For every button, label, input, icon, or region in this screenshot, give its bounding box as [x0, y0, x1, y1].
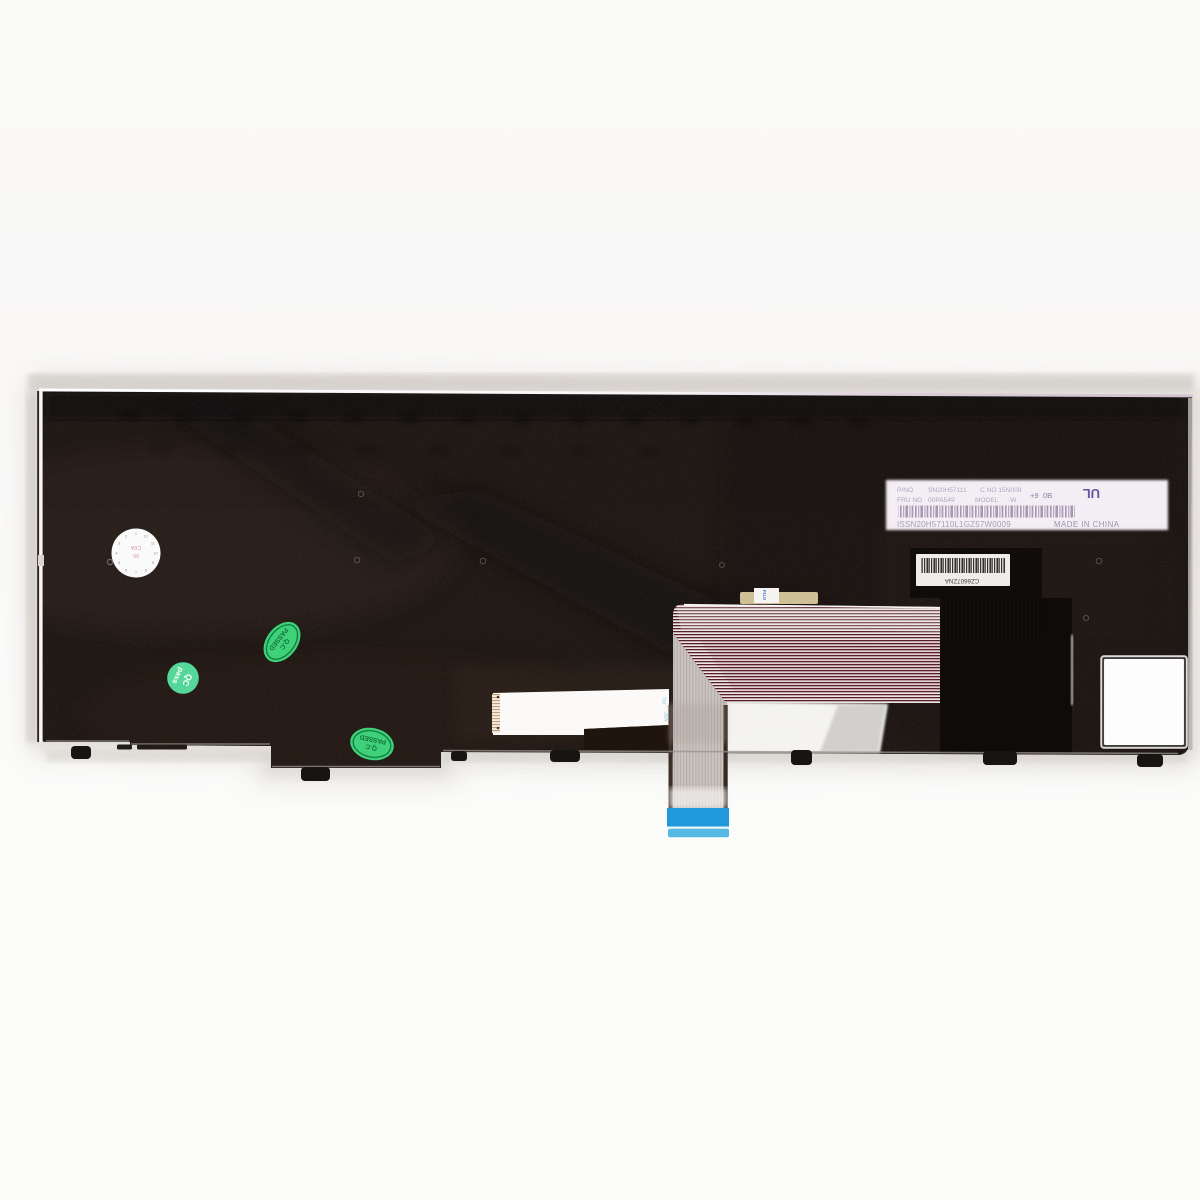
svg-text:CZ6607ZNA: CZ6607ZNA	[944, 577, 979, 584]
svg-text:9: 9	[152, 560, 154, 565]
svg-text:7: 7	[135, 570, 137, 575]
svg-text:FUJI: FUJI	[762, 590, 767, 600]
svg-text:05: 05	[133, 552, 139, 558]
svg-text:UL: UL	[1083, 486, 1100, 501]
svg-text:FRU NO: FRU NO	[897, 497, 922, 504]
svg-text:5: 5	[118, 560, 120, 565]
svg-text:-W: -W	[1008, 497, 1017, 504]
svg-text:C NO 15N009: C NO 15N009	[980, 487, 1022, 494]
svg-text:3: 3	[118, 541, 120, 546]
svg-text:6: 6	[125, 567, 127, 572]
svg-text:1: 1	[135, 531, 137, 536]
svg-text:11: 11	[151, 541, 155, 546]
svg-text:12: 12	[144, 534, 148, 539]
svg-text:SN20H57111: SN20H57111	[928, 487, 967, 494]
svg-text:TM: TM	[660, 697, 666, 704]
svg-text:MADE IN CHINA: MADE IN CHINA	[1054, 520, 1120, 529]
svg-text:JBA: JBA	[662, 712, 668, 722]
svg-text:00PA549: 00PA549	[928, 497, 955, 504]
svg-text:C6A: C6A	[130, 544, 141, 550]
svg-text:P/NO: P/NO	[897, 487, 913, 494]
svg-text:MODEL: MODEL	[975, 497, 999, 504]
svg-text:8: 8	[145, 567, 147, 572]
svg-text:ISSN20H57110L1GZ57W0009: ISSN20H57110L1GZ57W0009	[897, 520, 1011, 529]
svg-text:2: 2	[125, 534, 127, 539]
svg-text:+9 0B: +9 0B	[1030, 491, 1052, 500]
